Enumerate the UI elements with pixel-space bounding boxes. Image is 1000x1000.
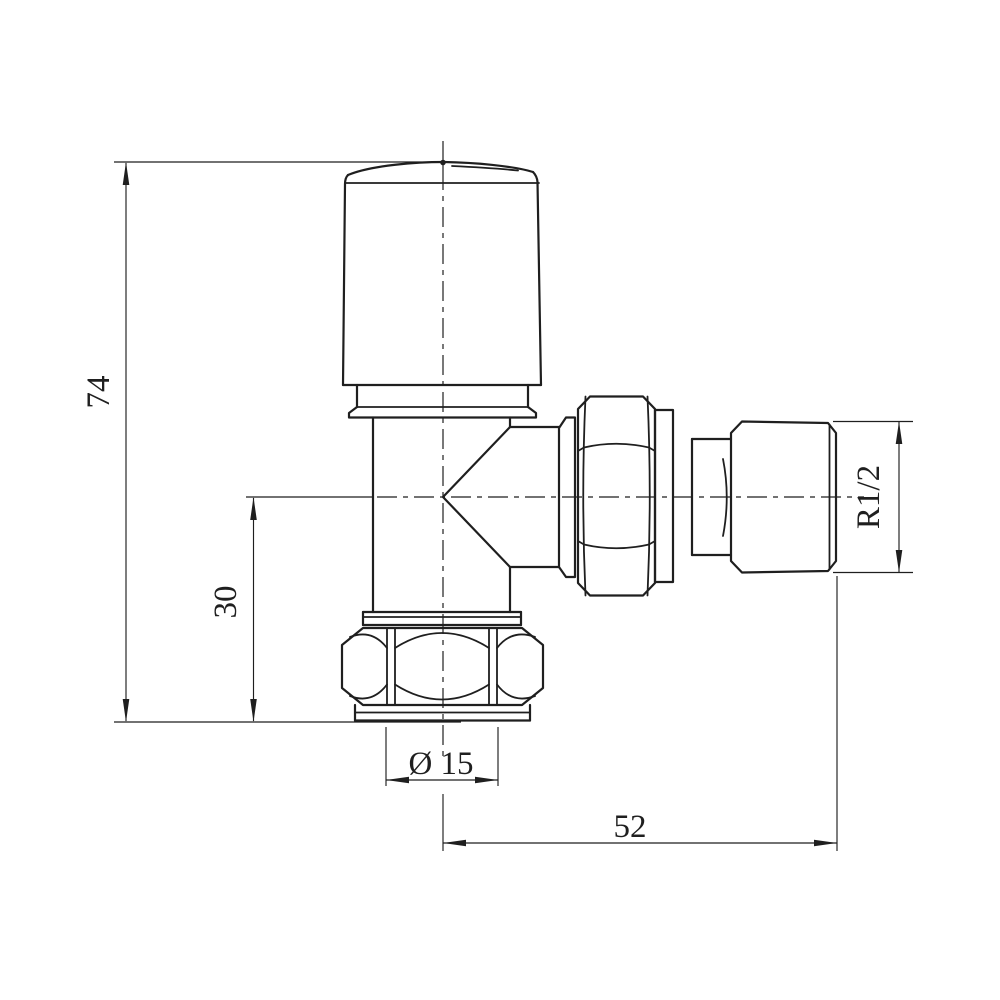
dim74-arrow-down (123, 699, 130, 722)
union-nut-collar (655, 410, 673, 582)
dim52-arrow-left (443, 840, 466, 847)
valve-body (373, 418, 510, 613)
radiator-valve-drawing: 74 30 Ø 15 52 R1/2 (0, 0, 1000, 1000)
dim52-arrow-right (814, 840, 837, 847)
union-nut-top-facet-arc (584, 444, 649, 448)
dim30-arrow-up (250, 497, 257, 520)
dim30-label: 30 (208, 586, 244, 619)
dim15-label: Ø 15 (408, 746, 473, 782)
cap-right-edge (533, 172, 541, 385)
dimr12-label: R1/2 (851, 465, 887, 529)
union-nut-right-facet-edge (648, 397, 650, 596)
technical-drawing-page: 74 30 Ø 15 52 R1/2 (0, 0, 1000, 1000)
dimr12-arrow-up (896, 422, 903, 445)
thread-outline (731, 422, 836, 573)
union-nut-bottom-facet-arc (584, 545, 649, 549)
dim74-label: 74 (81, 376, 117, 409)
union-nut-outline (578, 397, 655, 596)
compression-nut-bottom-facet-arc (395, 685, 489, 700)
dim30-arrow-down (250, 699, 257, 722)
cap-left-edge (343, 175, 348, 385)
dimension-thread-size: R1/2 (833, 422, 913, 573)
threaded-connector (731, 422, 836, 573)
bottom-flange (363, 612, 521, 625)
union-hex-nut (578, 397, 673, 596)
union-nut-side-facet-lines (578, 448, 655, 545)
compression-nut-top-facet-arc (395, 633, 489, 648)
dim52-label: 52 (614, 809, 647, 845)
centerlines (377, 141, 864, 757)
valve-head-cap (343, 162, 541, 385)
dimension-pipe-diameter: Ø 15 (386, 727, 498, 786)
dimension-center-to-base: 30 (208, 497, 374, 722)
compression-nut-facet-edges (387, 629, 497, 705)
dim15-arrow-left (386, 777, 409, 784)
dimr12-arrow-down (896, 550, 903, 573)
dim15-arrow-right (475, 777, 498, 784)
union-nut-left-facet-edge (583, 397, 585, 596)
dim74-arrow-up (123, 162, 130, 185)
dimension-overall-height: 74 (81, 162, 461, 722)
